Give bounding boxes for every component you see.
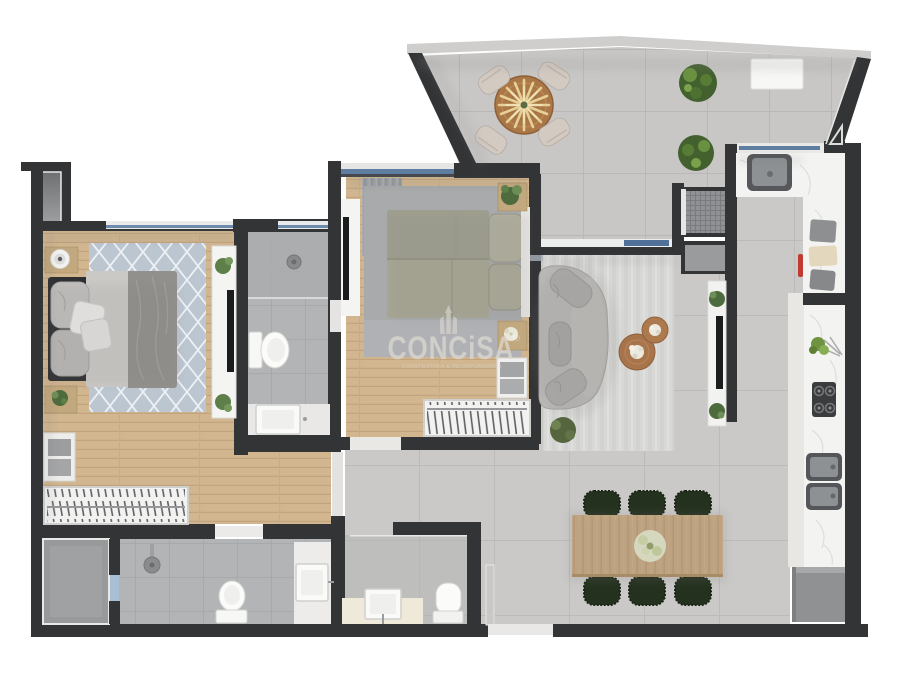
- svg-text:CONCiSA: CONCiSA: [388, 332, 515, 367]
- svg-text:CONSTRUTORA E INCORPORADORA: CONSTRUTORA E INCORPORADORA: [402, 364, 502, 370]
